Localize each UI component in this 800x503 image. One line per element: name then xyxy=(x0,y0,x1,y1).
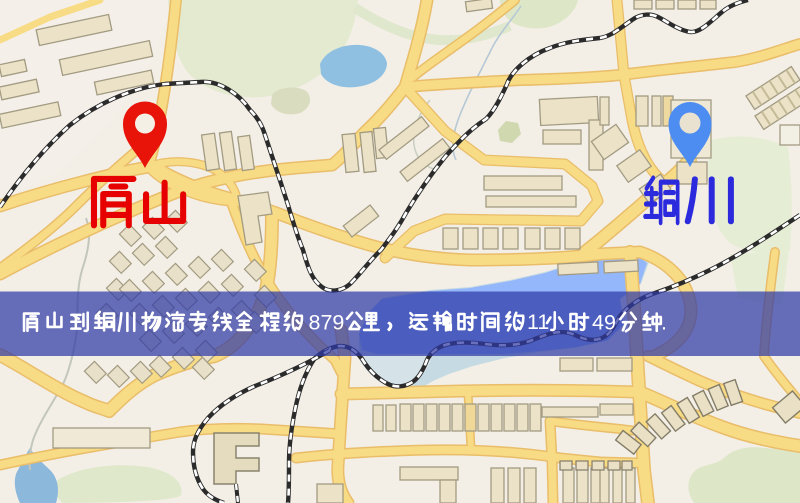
svg-text:879: 879 xyxy=(309,311,345,335)
svg-text:.: . xyxy=(661,311,667,335)
svg-text:11: 11 xyxy=(527,310,549,334)
svg-text:49: 49 xyxy=(592,311,616,335)
